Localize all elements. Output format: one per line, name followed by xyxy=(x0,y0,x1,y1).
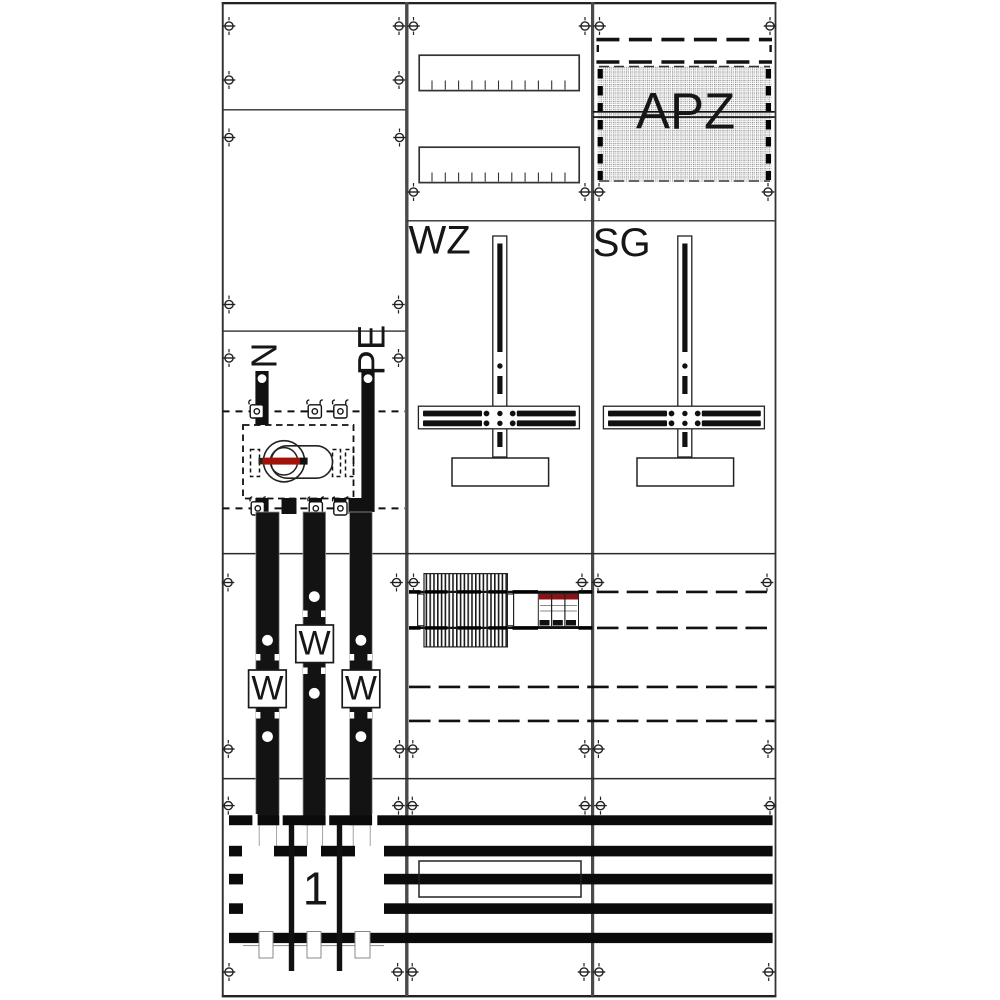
svg-text:W: W xyxy=(299,625,331,663)
svg-text:N: N xyxy=(244,343,285,369)
svg-text:W: W xyxy=(345,670,377,708)
svg-text:WZ: WZ xyxy=(409,219,471,263)
svg-text:W: W xyxy=(251,670,283,708)
svg-text:SG: SG xyxy=(593,221,651,265)
svg-text:APZ: APZ xyxy=(636,82,735,139)
svg-text:PE: PE xyxy=(352,325,394,376)
svg-text:1: 1 xyxy=(303,863,329,915)
